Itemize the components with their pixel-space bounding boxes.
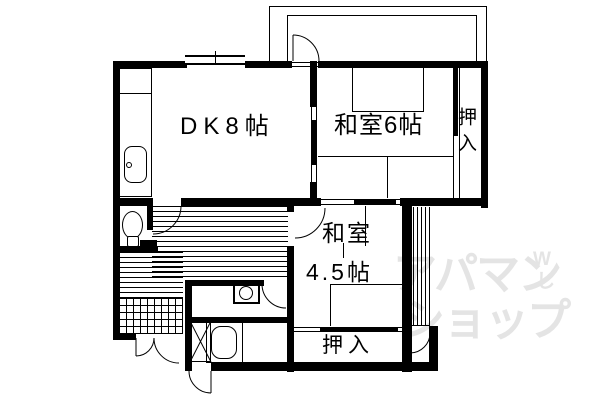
- door-arc-entrance: [189, 371, 211, 393]
- closet-label-lower: 押入: [322, 335, 374, 356]
- door-arc-east: [410, 333, 430, 353]
- door-arc-washroom: [262, 284, 286, 308]
- door-arc-dk-hall: [153, 206, 181, 234]
- closet-label-upper: 押入: [456, 107, 475, 159]
- floor-plan: アパマン W し ショップ: [0, 0, 600, 400]
- room-label-washitsu45-name: 和室: [322, 222, 372, 245]
- door-arc-genkan-left: [136, 338, 154, 356]
- room-label-dk: DK8帖: [180, 115, 275, 139]
- room-label-washitsu45-size: 4.5帖: [306, 261, 373, 284]
- door-arcs-layer: [0, 0, 600, 400]
- room-label-washitsu6: 和室6帖: [334, 114, 423, 138]
- door-arc-genkan-right: [154, 338, 179, 363]
- bath-door-x-mark: [190, 321, 211, 362]
- door-arc-washitsu45: [295, 208, 325, 238]
- door-arc-balcony: [293, 35, 319, 61]
